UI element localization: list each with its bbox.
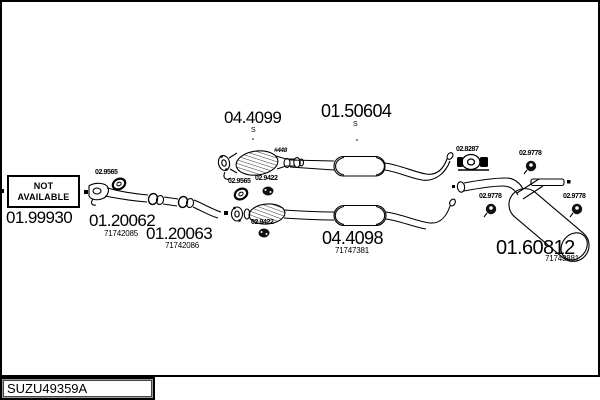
part-sub-04-4099: S	[251, 127, 256, 134]
part-ref-71742085: 71742085	[104, 230, 138, 238]
part-sub-01-50604: S	[353, 121, 358, 128]
part-ref-71742086: 71742086	[165, 242, 199, 250]
part-label-04-4099[interactable]: 04.4099	[224, 109, 281, 126]
fitting-label-02-9565: 02.9565	[95, 169, 118, 176]
hanger-icon	[570, 204, 582, 217]
flange-icon	[263, 187, 274, 196]
not-available-box: NOT AVAILABLE	[7, 175, 80, 208]
part-label-01-99930[interactable]: 01.99930	[6, 209, 72, 226]
exhaust-diagram-art	[0, 0, 600, 377]
part-ref-71743881: 71743881	[545, 255, 579, 263]
not-available-line1: NOT	[34, 181, 54, 191]
not-available-line2: AVAILABLE	[18, 192, 70, 202]
parts-diagram-page: NOT AVAILABLE 01.99930 01.20062 71742085…	[0, 0, 600, 400]
part-label-01-50604[interactable]: 01.50604	[321, 102, 391, 120]
fitting-label-02-9422: 02.9422	[251, 219, 274, 226]
drawing-code: SUZU49359A	[3, 380, 152, 397]
fitting-label-02-8287: 02.8287	[456, 146, 479, 153]
fitting-label-02-9565: 02.9565	[228, 178, 251, 185]
hanger-icon	[524, 161, 536, 174]
centre-silencer-drawing	[284, 139, 454, 180]
drawing-code-plate: SUZU49359A	[0, 377, 155, 400]
fitting-label-02-9778: 02.9778	[519, 150, 542, 157]
gasket-ring-icon	[233, 187, 249, 202]
fitting-label-02-9778: 02.9778	[479, 193, 502, 200]
fitting-label-02-9422: 02.9422	[255, 175, 278, 182]
part-ref-71747381: 71747381	[335, 247, 369, 255]
part-label-01-20063[interactable]: 01.20063	[146, 225, 212, 242]
hanger-icon	[484, 204, 496, 217]
flange-icon	[259, 229, 270, 238]
fitting-label-02-9778: 02.9778	[563, 193, 586, 200]
clamp-icon	[457, 155, 489, 171]
pipe-marking-label: #448	[274, 148, 287, 155]
part-label-04-4098[interactable]: 04.4098	[322, 229, 383, 247]
catalyst-assembly-top	[217, 138, 303, 179]
